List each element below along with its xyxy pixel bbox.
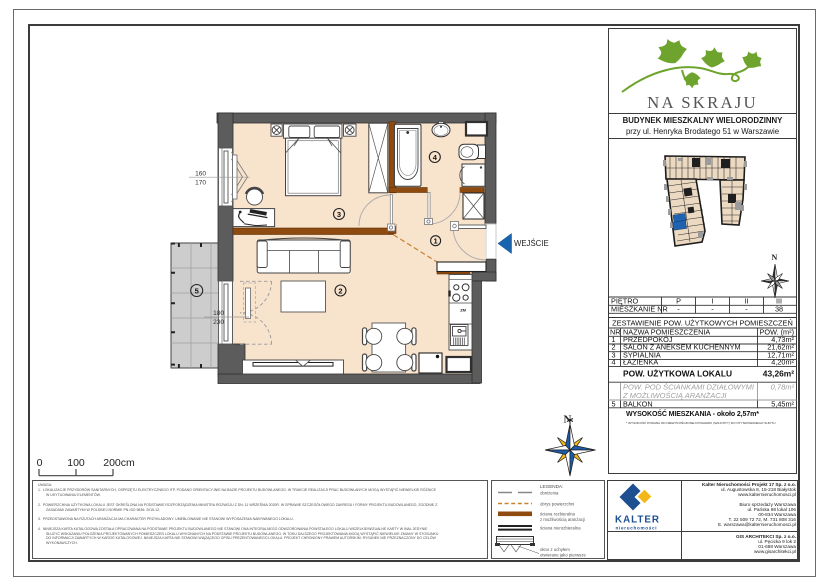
svg-text:5,45m²: 5,45m² [771,399,794,408]
svg-text:BALKON: BALKON [623,399,653,408]
svg-text:ZM: ZM [460,308,466,313]
svg-text:200cm: 200cm [103,457,135,469]
svg-text:nieruchomości: nieruchomości [616,526,658,531]
svg-text:4: 4 [612,358,616,367]
svg-text:ZESTAWIENIE POW. UŻYTKOWYCH PO: ZESTAWIENIE POW. UŻYTKOWYCH POMIESZCZEŃ [612,319,793,328]
svg-text:MIESZKANIE NR: MIESZKANIE NR [611,305,668,314]
svg-text:-: - [745,305,748,314]
svg-text:-: - [677,305,680,314]
svg-text:43,26m²: 43,26m² [763,369,794,379]
svg-text:-: - [711,305,714,314]
svg-text:2: 2 [338,287,342,296]
svg-text:170: 170 [195,180,206,187]
svg-text:otwierane jako pierwsze: otwierane jako pierwsze [540,552,586,557]
svg-text:100: 100 [67,457,85,469]
svg-text:0: 0 [37,457,43,469]
svg-text:LEGENDA:: LEGENDA: [540,484,563,489]
svg-text:160: 160 [195,171,206,178]
svg-text:180: 180 [213,310,224,317]
svg-text:230: 230 [213,319,224,326]
svg-text:WEJŚCIE: WEJŚCIE [514,239,549,248]
svg-text:okno z uchyłem: okno z uchyłem [540,547,570,552]
svg-text:N: N [772,253,778,262]
svg-text:0,78m²: 0,78m² [771,383,795,392]
svg-text:5: 5 [195,287,199,296]
svg-text:POW. UŻYTKOWA LOKALU: POW. UŻYTKOWA LOKALU [623,369,732,379]
svg-text:38: 38 [775,305,783,314]
svg-text:1: 1 [434,237,438,246]
svg-text:ściana nierozbieralna: ściana nierozbieralna [540,526,581,531]
svg-text:5: 5 [612,399,616,408]
svg-text:3: 3 [337,210,341,219]
svg-text:obniżenia: obniżenia [540,491,559,496]
svg-text:ściana rozbieralna: ściana rozbieralna [540,512,575,517]
svg-text:KALTER: KALTER [615,515,660,526]
svg-text:ŁAZIENKA: ŁAZIENKA [623,358,658,367]
svg-text:obrys powierzchni: obrys powierzchni [540,502,574,507]
svg-text:z możliwością aranżacji: z możliwością aranżacji [540,517,585,522]
svg-text:4,20m²: 4,20m² [771,358,794,367]
